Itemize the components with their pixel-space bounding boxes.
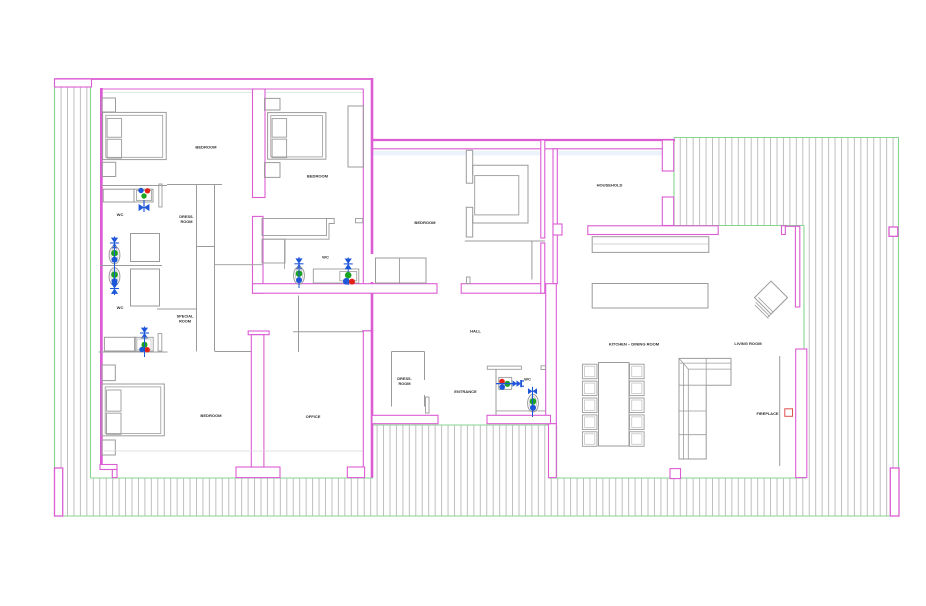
svg-text:KITCHEN – DINING ROOM: KITCHEN – DINING ROOM [609, 342, 660, 347]
svg-text:HALL: HALL [470, 329, 481, 334]
svg-text:WC: WC [524, 377, 531, 382]
svg-text:WC: WC [117, 305, 124, 310]
svg-text:WC: WC [117, 212, 124, 217]
svg-text:BEDROOM: BEDROOM [414, 220, 436, 225]
svg-text:BEDROOM: BEDROOM [307, 174, 329, 179]
svg-text:WC: WC [322, 255, 329, 260]
svg-text:HOUSEHOLD: HOUSEHOLD [597, 183, 623, 188]
svg-text:ROOM: ROOM [398, 381, 410, 386]
svg-text:ENTRANCE: ENTRANCE [454, 389, 477, 394]
svg-text:OFFICE: OFFICE [306, 414, 321, 419]
svg-text:ROOM: ROOM [179, 319, 191, 324]
svg-text:FIREPLACE: FIREPLACE [756, 411, 778, 416]
svg-text:LIVING ROOM: LIVING ROOM [734, 341, 762, 346]
svg-text:ROOM: ROOM [180, 219, 192, 224]
svg-text:BEDROOM: BEDROOM [195, 145, 217, 150]
svg-text:BEDROOM: BEDROOM [200, 413, 222, 418]
